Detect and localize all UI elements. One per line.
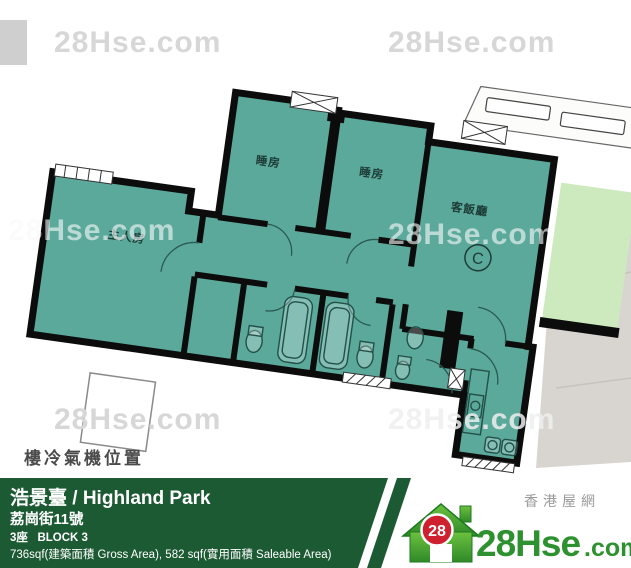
logo-cn-text: 香港屋網 xyxy=(524,493,600,509)
logo-house-icon: 28 xyxy=(403,504,479,562)
adjacent-unit xyxy=(539,182,631,338)
svg-text:28Hse: 28Hse xyxy=(476,523,580,564)
site-logo: 香港屋網 28 28Hse .com xyxy=(400,480,631,568)
banner-address: 荔崗街11號 xyxy=(10,508,83,529)
svg-text:.com: .com xyxy=(584,534,631,562)
logo-badge: 28 xyxy=(422,515,453,546)
watermark-block xyxy=(0,20,27,65)
banner-area: 736sqf(建築面積 Gross Area), 582 sqf(實用面積 Sa… xyxy=(10,546,331,562)
banner-block: 3座 BLOCK 3 xyxy=(10,529,88,545)
ac-note: 樓冷氣機位置 xyxy=(24,444,144,469)
floor-plan: 睡房 睡房 客飯廳 主人房 C xyxy=(0,0,631,478)
svg-text:C: C xyxy=(471,250,485,268)
ac-platform xyxy=(80,373,155,452)
property-banner: 浩景臺 / Highland Park 荔崗街11號 3座 BLOCK 3 73… xyxy=(0,478,440,568)
svg-text:28: 28 xyxy=(428,523,446,540)
banner-title: 浩景臺 / Highland Park xyxy=(10,483,211,510)
floor-plan-page: 睡房 睡房 客飯廳 主人房 C 28Hse.com 28Hse.com 28Hs… xyxy=(0,0,631,568)
logo-text: 28Hse .com xyxy=(476,523,631,564)
